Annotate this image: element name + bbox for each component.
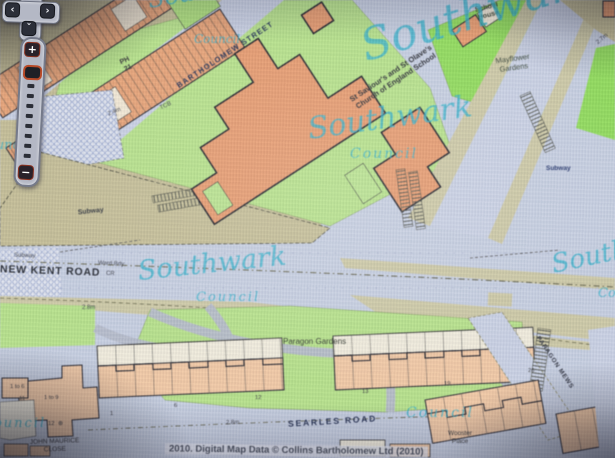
house-number: 26 (528, 368, 534, 375)
house-number: 6 (174, 403, 177, 410)
feature-label-subway-left: Subway (14, 253, 36, 261)
pan-right-button[interactable]: › (40, 3, 56, 19)
watermark-council-rightedge: Council (598, 286, 615, 301)
house-number: 11 (19, 396, 25, 403)
pan-left-button[interactable]: ‹ (5, 2, 21, 18)
house-number: 19 (444, 381, 450, 388)
map-canvas[interactable]: BARTHOLOMEW STREET St Saviour's and St O… (0, 0, 615, 458)
watermark-council-bottomleft: Council (0, 416, 46, 431)
pan-down-button[interactable]: ˇ (21, 21, 37, 37)
feature-label-ward-bdy: Ward Bdy (98, 260, 124, 269)
feature-label-cr: CR (106, 271, 115, 279)
house-number: 1 (110, 411, 113, 418)
house-number: 12 (48, 421, 54, 428)
depth-label-28a: 2.8m (82, 305, 95, 312)
zoom-tick (24, 144, 31, 148)
zoom-tick (27, 84, 34, 88)
zoom-tick (26, 114, 33, 118)
watermark-council-topleft: Council (194, 32, 240, 46)
zoom-tick (26, 104, 33, 108)
access-symbol-icon: ⊕ (58, 421, 63, 428)
zoom-tick (25, 134, 32, 138)
terrace-left-row (97, 338, 284, 398)
place-label-paragon-gardens: Paragon Gardens (283, 337, 346, 347)
zoom-tick (27, 94, 34, 98)
street-label-john-maurice: JOHN MAURICE CLOSE (30, 437, 80, 454)
house-number: 12 (255, 395, 261, 402)
house-number: 1 to 9 (44, 395, 59, 402)
zoom-tick (25, 124, 32, 128)
building-top-right-corner (603, 1, 615, 17)
depth-label-28b: 2.8m (226, 420, 240, 428)
watermark-council-center: Council (350, 146, 418, 162)
road-island (488, 292, 513, 306)
place-label-wooster: Wooster Place (448, 430, 472, 446)
map-pan-control: ˆ ‹ › ˇ (1, 0, 59, 40)
watermark-council-bottomright: Council (406, 405, 474, 421)
green-strip-left (0, 303, 95, 348)
zoom-in-button[interactable]: + (24, 42, 41, 58)
map-viewer-screenshot: BARTHOLOMEW STREET St Saviour's and St O… (0, 0, 615, 458)
zoom-slider-handle[interactable] (23, 65, 43, 81)
zoom-tick (24, 154, 31, 158)
zoom-out-button[interactable]: − (17, 164, 34, 180)
feature-label-subway-right: Subway (546, 165, 571, 173)
watermark-council-road: Council (196, 290, 260, 305)
house-number: 1 to 6 (10, 384, 25, 391)
house-number: 13 (362, 389, 368, 396)
